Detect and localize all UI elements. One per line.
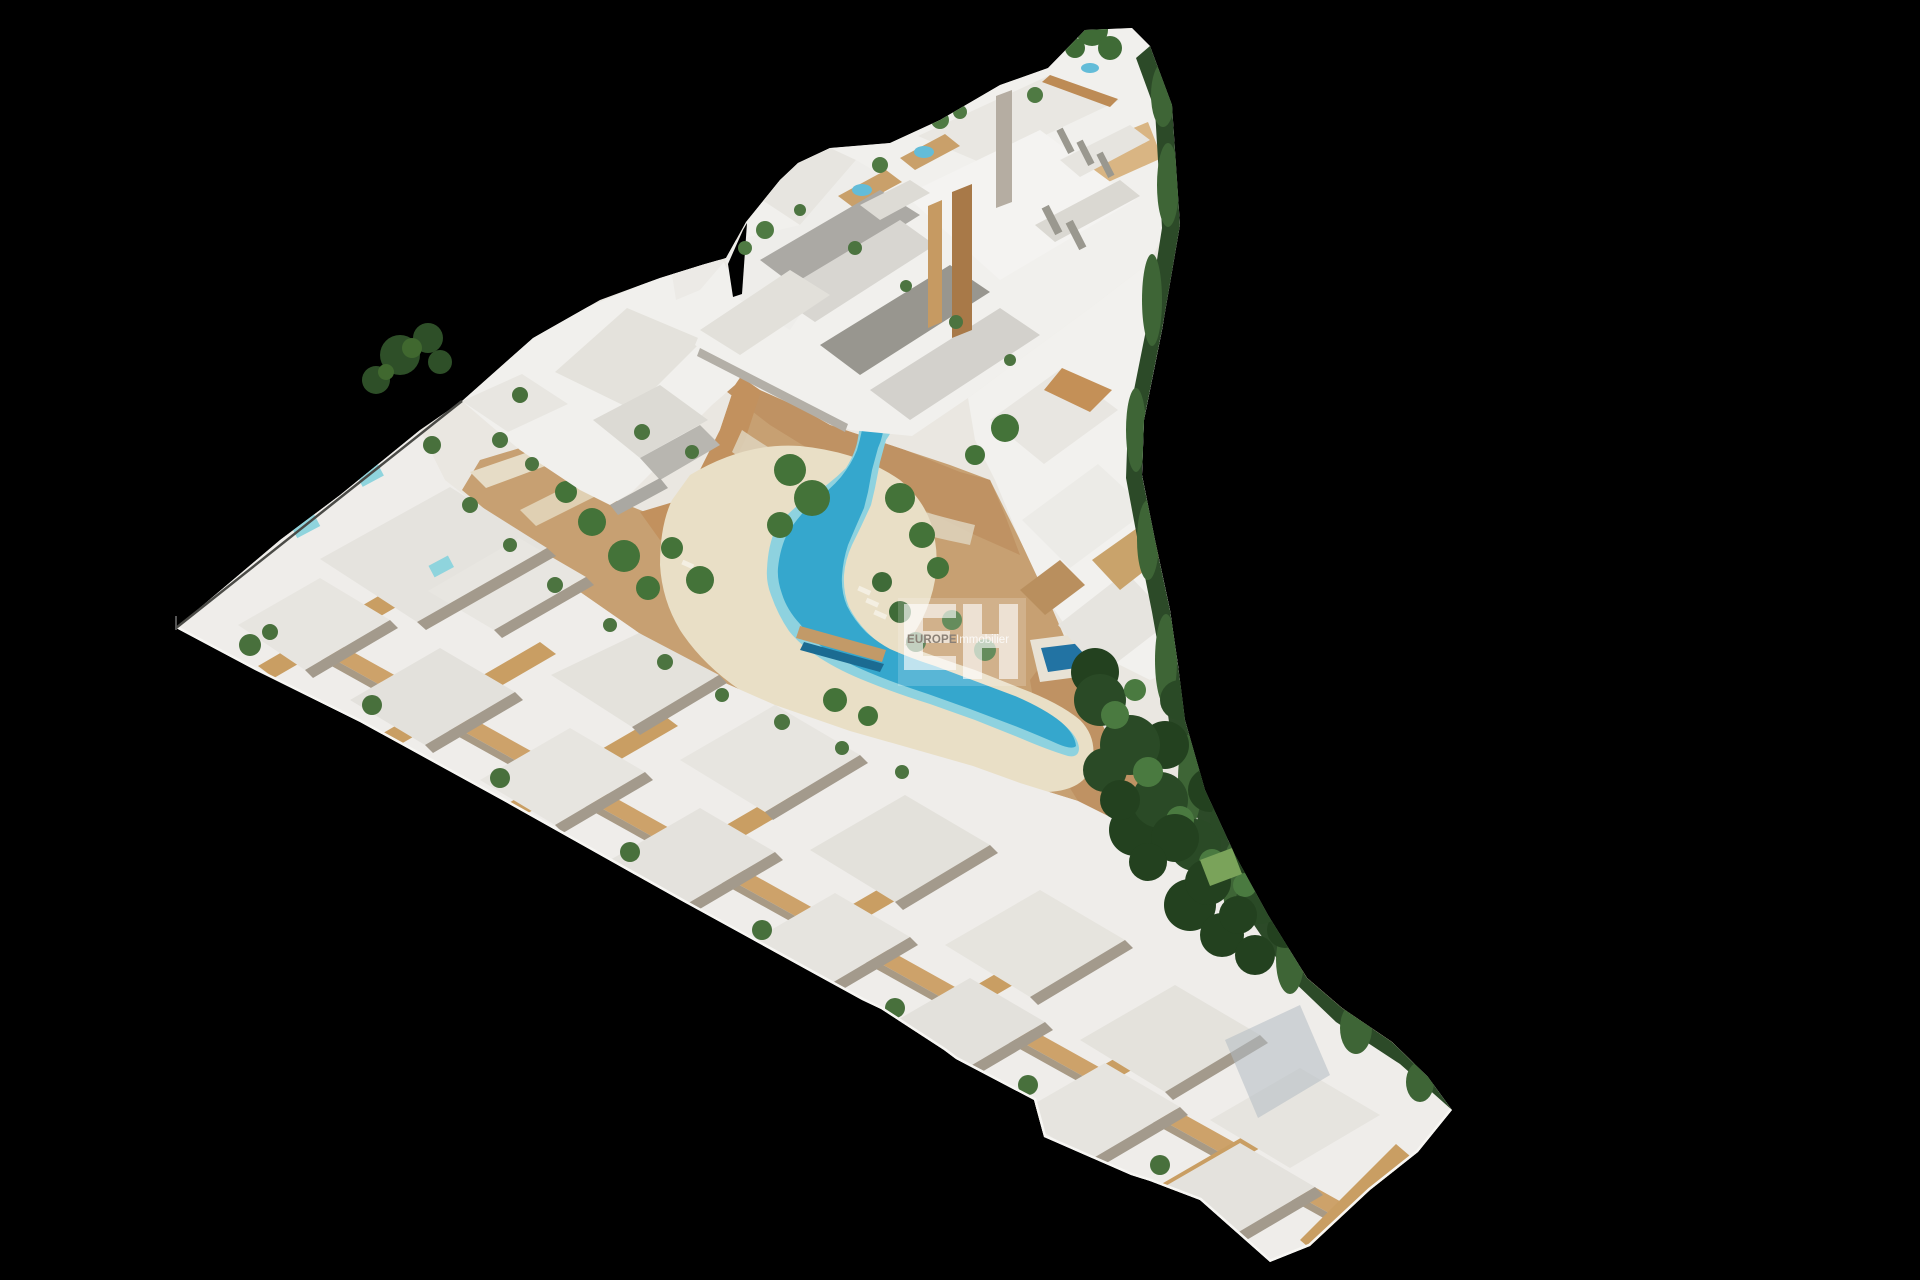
svg-text:EUROPE: EUROPE xyxy=(907,634,957,646)
svg-text:Immobilier: Immobilier xyxy=(956,634,1009,646)
